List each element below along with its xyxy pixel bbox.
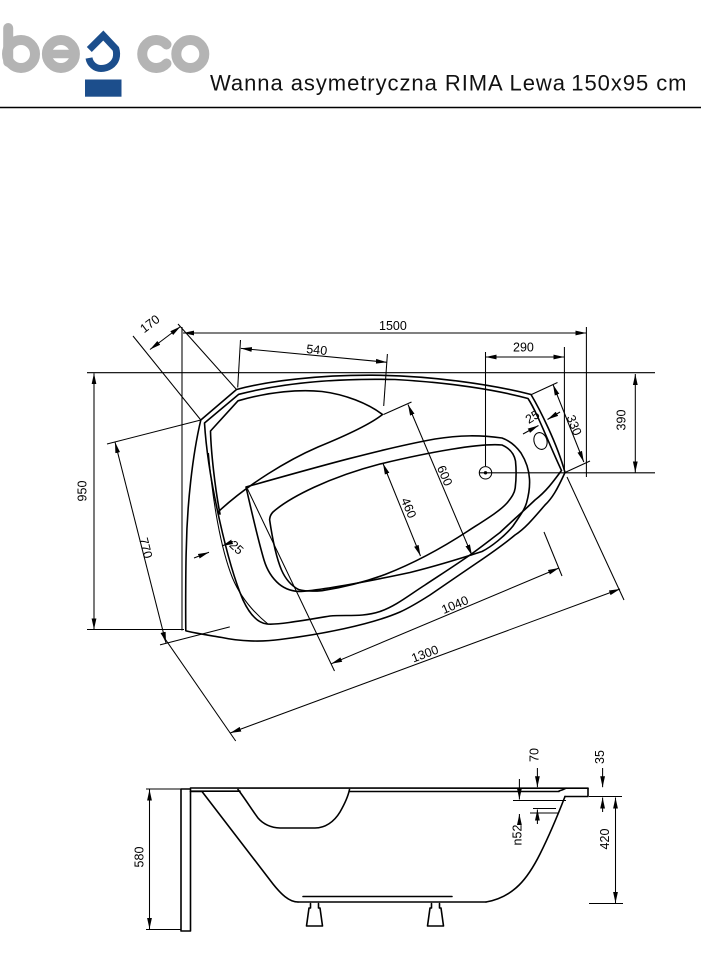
svg-text:35: 35 xyxy=(593,750,607,764)
svg-text:600: 600 xyxy=(434,463,455,488)
svg-text:n52: n52 xyxy=(511,825,525,846)
svg-text:170: 170 xyxy=(137,312,162,336)
svg-text:70: 70 xyxy=(528,748,542,762)
svg-text:420: 420 xyxy=(598,829,612,850)
svg-text:Wanna asymetryczna RIMA Lewa 1: Wanna asymetryczna RIMA Lewa 150x95 cm xyxy=(210,70,687,95)
svg-text:1500: 1500 xyxy=(379,319,407,333)
svg-text:1300: 1300 xyxy=(410,643,441,666)
svg-text:580: 580 xyxy=(133,847,147,868)
svg-text:390: 390 xyxy=(615,410,629,431)
svg-text:1040: 1040 xyxy=(439,593,470,617)
svg-text:540: 540 xyxy=(306,342,328,358)
svg-text:770: 770 xyxy=(136,536,155,560)
svg-text:25: 25 xyxy=(226,538,246,558)
svg-text:950: 950 xyxy=(76,481,90,502)
svg-text:290: 290 xyxy=(513,341,534,355)
svg-text:460: 460 xyxy=(398,496,419,521)
svg-text:330: 330 xyxy=(564,413,585,438)
